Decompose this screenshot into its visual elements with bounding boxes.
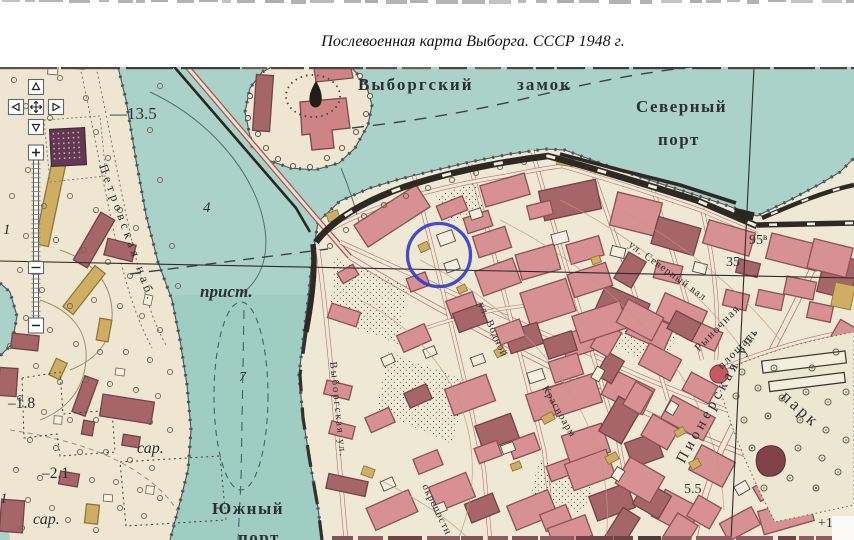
svg-text:Послевоенная карта Выборга. СС: Послевоенная карта Выборга. СССР 1948 г.: [320, 33, 624, 50]
